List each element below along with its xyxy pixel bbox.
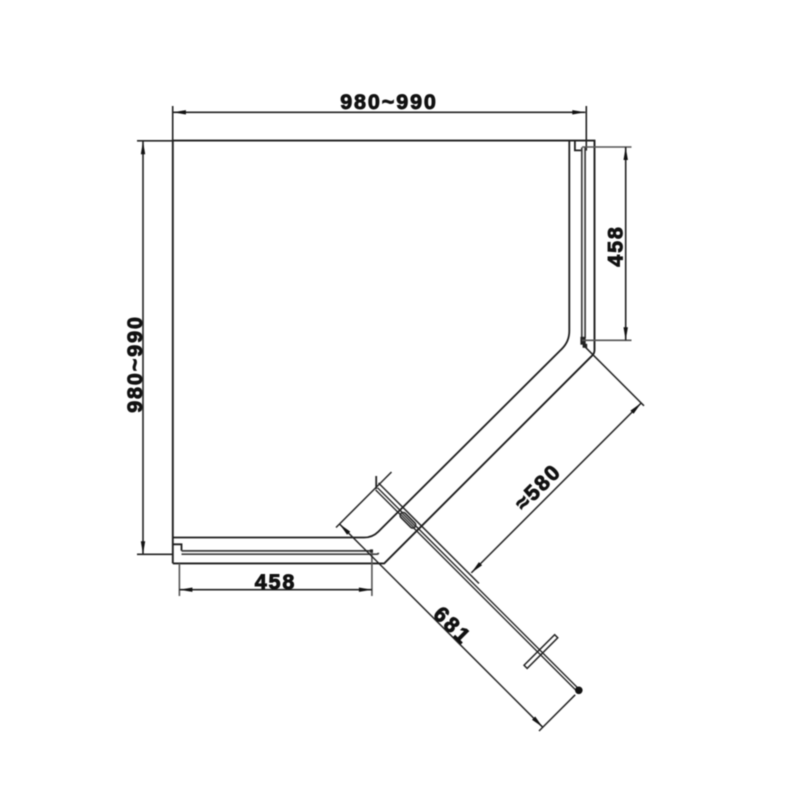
svg-text:458: 458 bbox=[255, 570, 297, 594]
svg-text:980~990: 980~990 bbox=[340, 90, 438, 114]
svg-text:458: 458 bbox=[604, 225, 628, 267]
svg-text:980~990: 980~990 bbox=[123, 315, 147, 413]
svg-text:681: 681 bbox=[429, 602, 477, 650]
